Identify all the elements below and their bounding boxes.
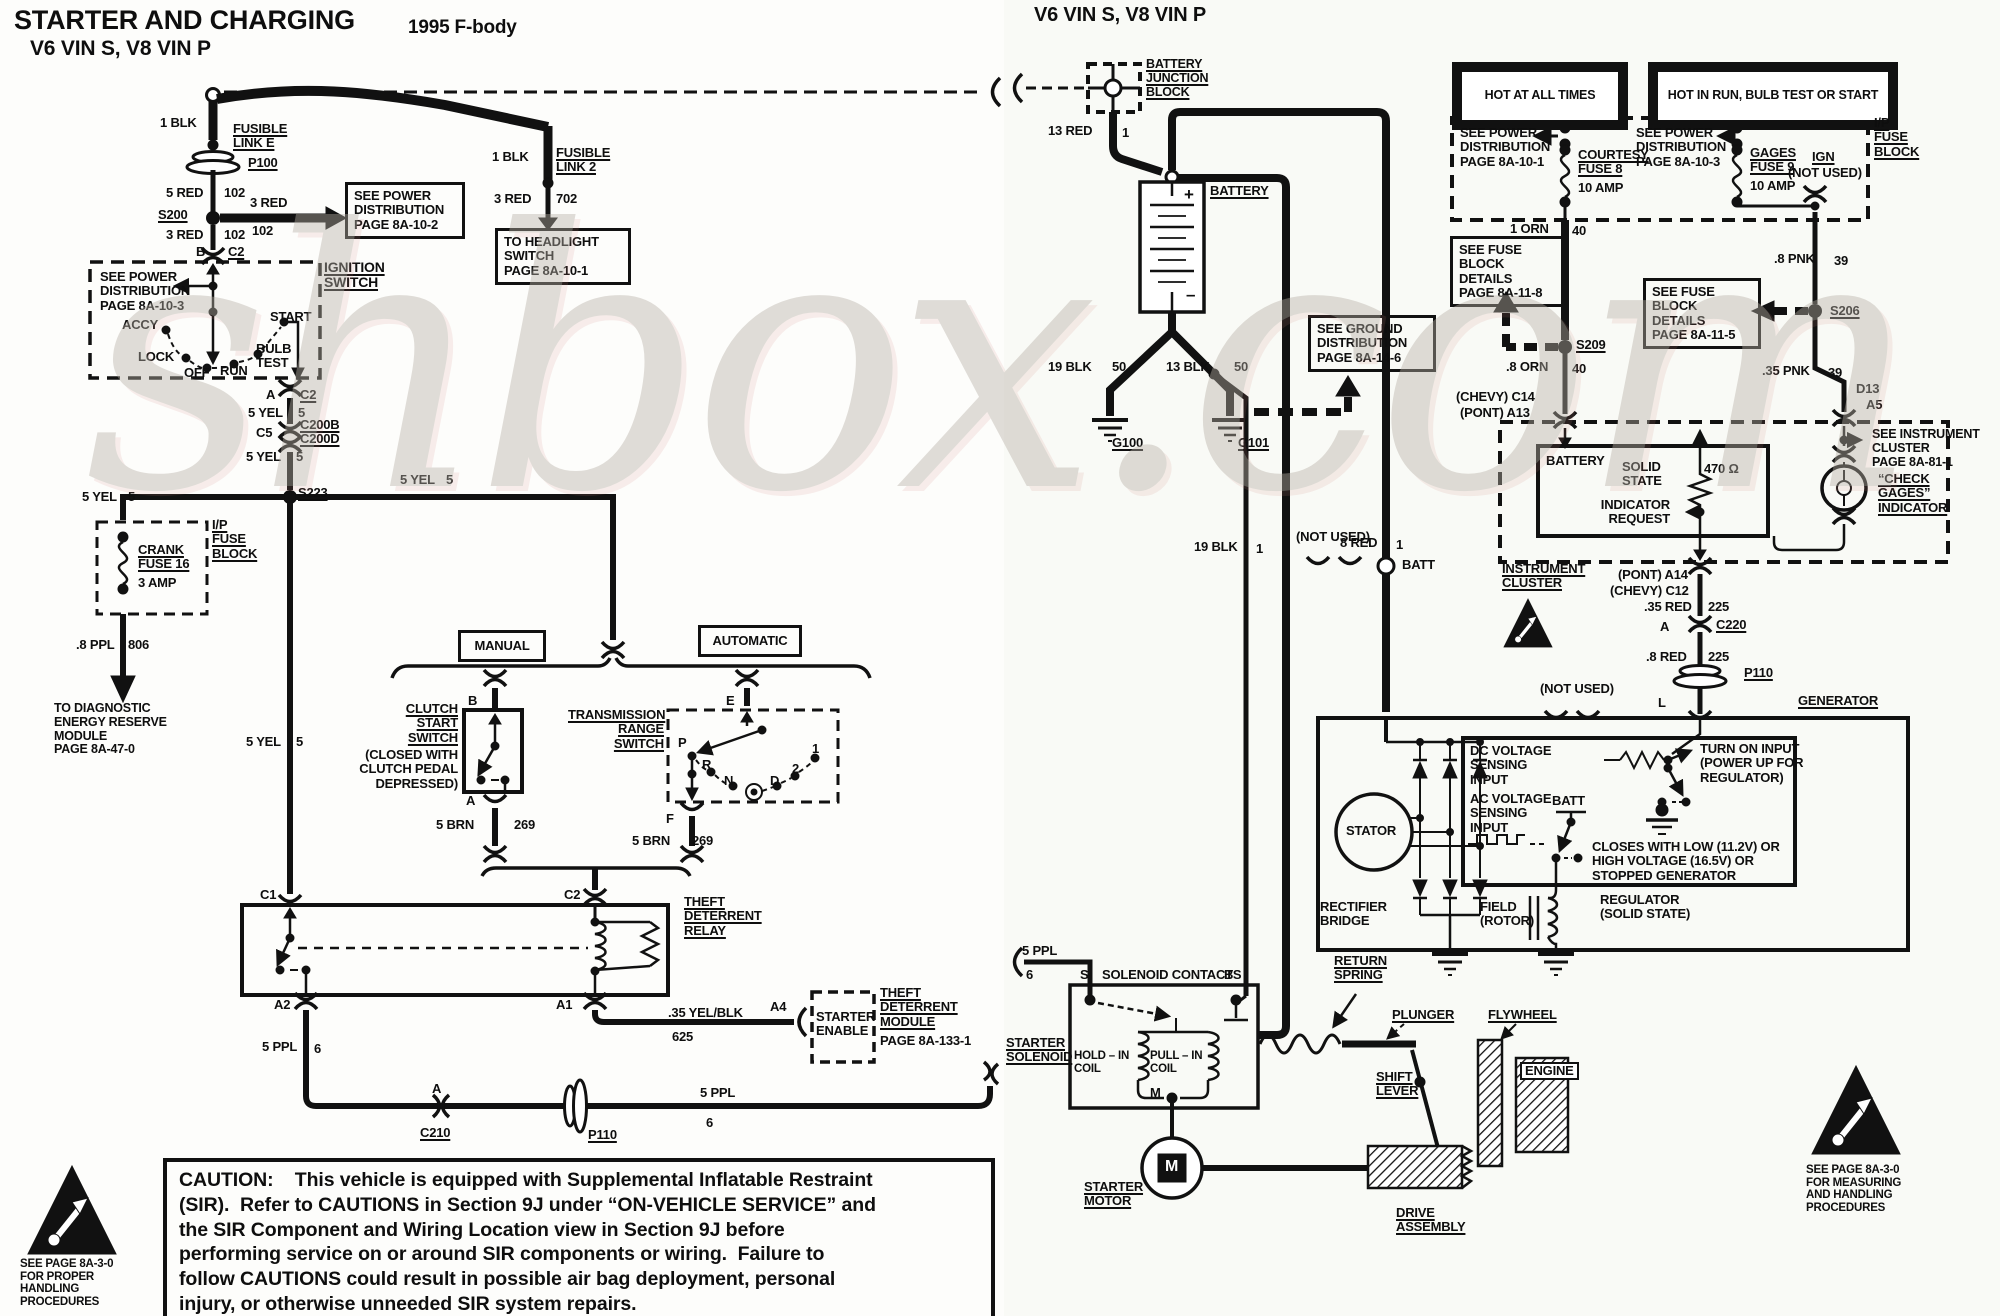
wire-5brn-a-ckt: 269 (514, 818, 535, 832)
ref-power-dist-8a-10-1: SEE POWER DISTRIBUTION PAGE 8A-10-1 (1460, 126, 1550, 169)
conn-p110-right: P110 (1744, 666, 1773, 680)
wire-13blk-50: 13 BLK (1166, 360, 1210, 374)
term-a1: A1 (556, 998, 572, 1012)
fusible-link-e: FUSIBLE LINK E (233, 122, 287, 151)
engine-label: ENGINE (1520, 1062, 1579, 1080)
ign-term: IGN (1812, 150, 1835, 164)
theft-deterrent-module-page: PAGE 8A-133-1 (880, 1034, 971, 1048)
starter-motor-label: STARTER MOTOR (1084, 1180, 1143, 1209)
rectifier-bridge: RECTIFIER BRIDGE (1320, 900, 1387, 929)
ref-instrument-cluster: SEE INSTRUMENT CLUSTER PAGE 8A-81-1 (1872, 428, 1980, 469)
wire-5yel-2-ckt: 5 (296, 450, 303, 464)
wire-5ppl-c: 5 PPL (1022, 944, 1057, 958)
courtesy-fuse-amp: 10 AMP (1578, 181, 1623, 195)
wire-5ppl-b-ckt: 6 (706, 1116, 713, 1130)
conn-c2-top: C2 (228, 245, 244, 259)
cluster-battery: BATTERY (1546, 454, 1605, 468)
wire-5ppl-c-ckt: 6 (1026, 968, 1033, 982)
ignition-switch-label: IGNITION SWITCH (324, 260, 385, 291)
pull-in-coil: PULL – IN COIL (1150, 1050, 1202, 1075)
solenoid-contacts: SOLENOID CONTACTS (1102, 968, 1241, 982)
ip-fuse-block-left: I/P FUSE BLOCK (212, 518, 257, 561)
wire-8pnk-ckt: 39 (1834, 254, 1848, 268)
term-b-solenoid: B (1224, 968, 1233, 982)
ground-g100: G100 (1112, 436, 1143, 450)
closes-with-note: CLOSES WITH LOW (11.2V) OR HIGH VOLTAGE … (1592, 840, 1780, 883)
conn-c14: (CHEVY) C14 (1456, 390, 1535, 404)
ref-power-dist-8a-10-3-right: SEE POWER DISTRIBUTION PAGE 8A-10-3 (1636, 126, 1726, 169)
caution-text: CAUTION: This vehicle is equipped with S… (163, 1158, 995, 1316)
conn-c210: C210 (420, 1126, 450, 1140)
ign-pos-bulbtest: BULB TEST (256, 342, 291, 371)
wire-5red: 5 RED (166, 186, 203, 200)
wire-35yelblk-ckt: 625 (672, 1030, 693, 1044)
esd-note-right: SEE PAGE 8A-3-0 FOR MEASURING AND HANDLI… (1806, 1164, 1901, 1215)
wire-35pnk-ckt: 39 (1828, 366, 1842, 380)
clutch-start-switch: CLUTCH START SWITCH (370, 702, 458, 745)
hold-in-coil: HOLD – IN COIL (1074, 1050, 1129, 1075)
trs-pos-r: R (702, 758, 711, 772)
esd-note-left: SEE PAGE 8A-3-0 FOR PROPER HANDLING PROC… (20, 1258, 113, 1309)
wire-1blk-right: 1 BLK (492, 150, 529, 164)
wire-1blk-left: 1 BLK (160, 116, 197, 130)
wire-35pnk: .35 PNK (1762, 364, 1810, 378)
fusible-link-2: FUSIBLE LINK 2 (556, 146, 610, 175)
ref-power-dist-8a-10-2: SEE POWER DISTRIBUTION PAGE 8A-10-2 (345, 182, 465, 239)
term-c1-relay: C1 (260, 888, 276, 902)
conn-p110-left: P110 (588, 1128, 617, 1142)
manual-tag: MANUAL (458, 630, 546, 662)
battery-label: BATTERY (1210, 184, 1269, 198)
automatic-tag: AUTOMATIC (698, 625, 802, 657)
ref-ground-dist: SEE GROUND DISTRIBUTION PAGE 8A-14-6 (1308, 315, 1436, 372)
term-c5: C5 (256, 426, 272, 440)
wire-35yelblk: .35 YEL/BLK (668, 1006, 743, 1020)
splice-s200: S200 (158, 208, 188, 222)
wire-3red-702: 3 RED (494, 192, 531, 206)
ref-fuse-block-8a-11-5: SEE FUSE BLOCK DETAILS PAGE 8A-11-5 (1643, 278, 1761, 349)
regulator-solid-state: REGULATOR (SOLID STATE) (1600, 893, 1690, 922)
return-spring: RETURN SPRING (1334, 954, 1387, 983)
conn-c2-bot: C2 (300, 388, 316, 402)
ref-diag-energy: TO DIAGNOSTIC ENERGY RESERVE MODULE PAGE… (54, 702, 167, 757)
term-a4: A4 (770, 1000, 786, 1014)
wire-8red-225-ckt: 225 (1708, 650, 1729, 664)
ign-pos-start: START (270, 310, 311, 324)
wire-8red-225: .8 RED (1646, 650, 1687, 664)
wire-5yel-3-ckt: 5 (128, 490, 135, 504)
dc-voltage-sensing: DC VOLTAGE SENSING INPUT (1470, 744, 1551, 787)
indicator-request: INDICATOR REQUEST (1598, 498, 1670, 527)
conn-c12: (CHEVY) C12 (1610, 584, 1689, 598)
title-main: STARTER AND CHARGING (14, 6, 355, 36)
starter-motor-m: M (1165, 1158, 1178, 1176)
battery-junction-block: BATTERY JUNCTION BLOCK (1146, 58, 1208, 99)
wire-8ppl: .8 PPL (76, 638, 115, 652)
wire-13red: 13 RED (1048, 124, 1092, 138)
ign-pos-lock: LOCK (138, 350, 174, 364)
wire-8pnk: .8 PNK (1774, 252, 1815, 266)
wire-35red-ckt: 225 (1708, 600, 1729, 614)
wire-5brn-b-ckt: 269 (692, 834, 713, 848)
trs-pos-1: 1 (812, 742, 819, 756)
banner-hot-all-times: HOT AT ALL TIMES (1452, 62, 1628, 130)
labels-layer: STARTER AND CHARGINGV6 VIN S, V8 VIN P19… (0, 0, 2000, 1316)
conn-c220: C220 (1716, 618, 1746, 632)
term-a2: A2 (274, 998, 290, 1012)
wire-1orn: 1 ORN (1510, 222, 1549, 236)
wire-35red: .35 RED (1644, 600, 1692, 614)
ref-power-dist-8a-10-3-left: SEE POWER DISTRIBUTION PAGE 8A-10-3 (100, 270, 190, 313)
plunger-label: PLUNGER (1392, 1008, 1454, 1022)
term-c2-relay: C2 (564, 888, 580, 902)
trs-pos-n: N (724, 774, 733, 788)
trans-range-switch: TRANSMISSION RANGE SWITCH (568, 708, 664, 751)
wire-3red-b: 3 RED (166, 228, 203, 242)
conn-a13: (PONT) A13 (1460, 406, 1530, 420)
wire-5brn-a: 5 BRN (436, 818, 474, 832)
title-year: 1995 F-body (408, 18, 517, 39)
flywheel-label: FLYWHEEL (1488, 1008, 1557, 1022)
wire-13red-ckt: 1 (1122, 126, 1129, 140)
wire-19blk-50-ckt: 50 (1112, 360, 1126, 374)
wire-5yel-1: 5 YEL (248, 406, 283, 420)
term-s: S (1080, 968, 1088, 982)
title-right: V6 VIN S, V8 VIN P (1034, 4, 1206, 26)
wiring-diagram-page: STARTER AND CHARGINGV6 VIN S, V8 VIN P19… (0, 0, 2000, 1316)
regulator-batt: BATT (1552, 794, 1585, 808)
ign-not-used: (NOT USED) (1788, 166, 1862, 180)
term-a-ign: A (266, 388, 275, 402)
title-sub: V6 VIN S, V8 VIN P (30, 37, 211, 60)
splice-s209: S209 (1576, 338, 1606, 352)
wire-3red-a-ckt: 102 (252, 224, 273, 238)
wire-19blk-1-ckt: 1 (1256, 542, 1263, 556)
wire-5ppl-a-ckt: 6 (314, 1042, 321, 1056)
clutch-start-note: (CLOSED WITH CLUTCH PEDAL DEPRESSED) (340, 748, 458, 791)
wire-3red-702-ckt: 702 (556, 192, 577, 206)
banner-hot-run: HOT IN RUN, BULB TEST OR START (1648, 62, 1898, 130)
wire-8red-1-ckt: 1 (1396, 538, 1403, 552)
check-gages-indicator: “CHECK GAGES” INDICATOR (1878, 472, 1947, 515)
wire-5yel-4: 5 YEL (400, 473, 435, 487)
conn-p100-left: P100 (248, 156, 278, 170)
field-rotor: FIELD (ROTOR) (1480, 900, 1534, 929)
term-a-clutch: A (466, 794, 475, 808)
wire-5ppl-b: 5 PPL (700, 1086, 735, 1100)
gages-fuse-amp: 10 AMP (1750, 179, 1795, 193)
conn-c200: C200B C200D (300, 418, 339, 447)
term-b-clutch: B (468, 694, 477, 708)
term-e: E (726, 694, 734, 708)
ip-fuse-block-right: I/P FUSE BLOCK (1874, 116, 1919, 159)
term-a5: A5 (1866, 398, 1882, 412)
wire-5ppl-a: 5 PPL (262, 1040, 297, 1054)
term-a-c220: A (1660, 620, 1669, 634)
battery-plus: + (1184, 186, 1194, 205)
starter-solenoid-label: STARTER SOLENOID (1006, 1036, 1072, 1065)
conn-a14: (PONT) A14 (1618, 568, 1688, 582)
trs-pos-p: P (678, 736, 686, 750)
cluster-solid-state: SOLID STATE (1622, 460, 1662, 489)
ac-voltage-sensing: AC VOLTAGE SENSING INPUT (1470, 792, 1551, 835)
wire-8orn-ckt: 40 (1572, 362, 1586, 376)
term-a-c210: A (432, 1082, 441, 1096)
starter-enable: STARTER ENABLE (816, 1010, 875, 1039)
term-l: L (1658, 696, 1666, 710)
wire-5yel-2: 5 YEL (246, 450, 281, 464)
wire-5yel-3: 5 YEL (82, 490, 117, 504)
splice-s223: S223 (298, 486, 328, 500)
wire-5yel-5-ckt: 5 (296, 735, 303, 749)
wire-5yel-4-ckt: 5 (446, 473, 453, 487)
ref-headlight-switch: TO HEADLIGHT SWITCH PAGE 8A-10-1 (495, 228, 631, 285)
gen-batt-ring: BATT (1402, 558, 1435, 572)
term-d13: D13 (1856, 382, 1879, 396)
ign-pos-run: RUN (220, 364, 248, 378)
wire-8ppl-ckt: 806 (128, 638, 149, 652)
cluster-resistor: 470 Ω (1704, 462, 1739, 476)
trs-pos-d: D (770, 774, 779, 788)
wire-13blk-50-ckt: 50 (1234, 360, 1248, 374)
wire-19blk-50: 19 BLK (1048, 360, 1092, 374)
drive-assembly: DRIVE ASSEMBLY (1396, 1206, 1465, 1235)
instrument-cluster-label: INSTRUMENT CLUSTER (1502, 562, 1585, 591)
wire-5red-ckt: 102 (224, 186, 245, 200)
turn-on-input: TURN ON INPUT (POWER UP FOR REGULATOR) (1700, 742, 1803, 785)
term-m: M (1150, 1086, 1161, 1100)
wire-8red-1: 8 RED (1340, 536, 1377, 550)
theft-deterrent-relay: THEFT DETERRENT RELAY (684, 895, 762, 938)
theft-deterrent-module: THEFT DETERRENT MODULE (880, 986, 958, 1029)
crank-fuse: CRANK FUSE 16 (138, 543, 189, 572)
wire-8orn: .8 ORN (1506, 360, 1548, 374)
term-b: B (196, 245, 205, 259)
not-used-right: (NOT USED) (1540, 682, 1614, 696)
stator-label: STATOR (1346, 824, 1396, 838)
ref-fuse-block-8a-11-8: SEE FUSE BLOCK DETAILS PAGE 8A-11-8 (1450, 236, 1568, 307)
wire-19blk-1: 19 BLK (1194, 540, 1238, 554)
trs-pos-2: 2 (792, 762, 799, 776)
battery-minus: – (1186, 286, 1195, 305)
generator-label: GENERATOR (1798, 694, 1878, 708)
wire-1orn-ckt: 40 (1572, 224, 1586, 238)
wire-5yel-5: 5 YEL (246, 735, 281, 749)
wire-3red-a: 3 RED (250, 196, 287, 210)
shift-lever: SHIFT LEVER (1376, 1070, 1418, 1099)
wire-3red-b-ckt: 102 (224, 228, 245, 242)
splice-s206: S206 (1830, 304, 1860, 318)
crank-fuse-amp: 3 AMP (138, 576, 176, 590)
term-f: F (666, 812, 674, 826)
ign-pos-off: OFF (184, 366, 209, 380)
wire-5brn-b: 5 BRN (632, 834, 670, 848)
ground-g101: G101 (1238, 436, 1269, 450)
ign-pos-accy: ACCY (122, 318, 158, 332)
